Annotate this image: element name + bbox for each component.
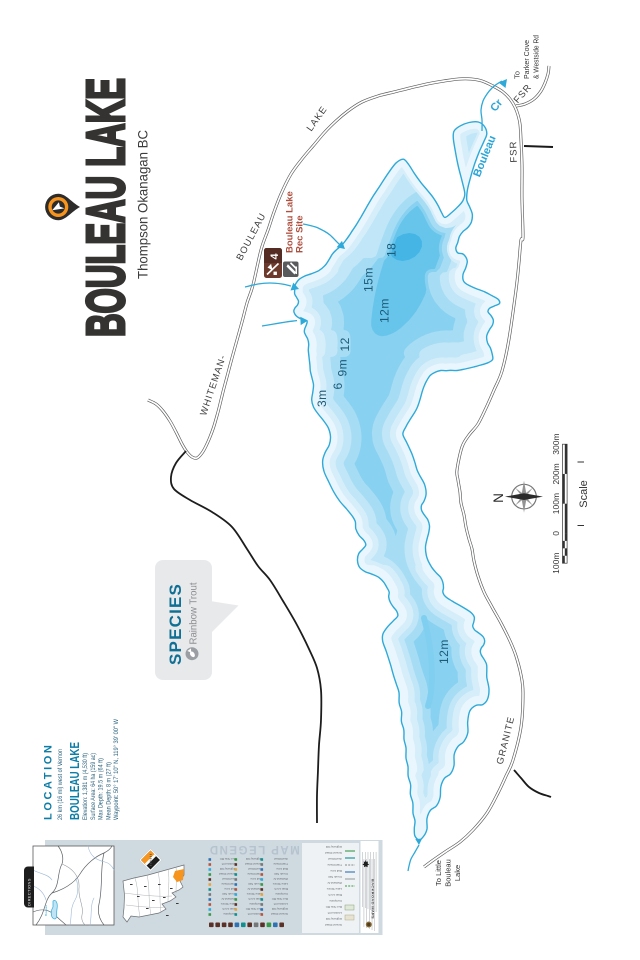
- svg-text:Waypoint: 50° 17' 10" N, 119°: Waypoint: 50° 17' 10" N, 119° 39' 00" W: [112, 718, 120, 820]
- svg-text:Highway Rd: Highway Rd: [271, 907, 288, 911]
- svg-text:DIRECTIONS: DIRECTIONS: [27, 878, 32, 906]
- svg-text:MAP LEGEND: MAP LEGEND: [208, 843, 299, 855]
- svg-text:Creek Stm: Creek Stm: [247, 882, 262, 886]
- svg-text:Wetland Ar: Wetland Ar: [221, 897, 236, 901]
- svg-text:300m: 300m: [551, 433, 561, 454]
- svg-text:FSR: FSR: [508, 140, 520, 162]
- svg-text:Rec Site BC: Rec Site BC: [245, 907, 262, 911]
- svg-text:Creek Stm: Creek Stm: [327, 875, 342, 879]
- svg-text:Creek Stm: Creek Stm: [273, 872, 288, 876]
- svg-text:4wd Road: 4wd Road: [222, 877, 236, 881]
- svg-text:Rail Line: Rail Line: [330, 869, 342, 873]
- svg-text:Highway Rd: Highway Rd: [219, 867, 236, 871]
- svg-text:Wetland Ar: Wetland Ar: [273, 877, 288, 881]
- svg-text:BOULEAU LAKE: BOULEAU LAKE: [67, 742, 82, 820]
- svg-text:Trail Route: Trail Route: [273, 862, 288, 866]
- svg-text:4wd Road: 4wd Road: [274, 857, 288, 861]
- svg-text:Gravel Road: Gravel Road: [219, 872, 236, 876]
- svg-text:15m: 15m: [362, 267, 376, 292]
- svg-text:3m: 3m: [315, 389, 329, 407]
- svg-text:Highway Rd: Highway Rd: [245, 857, 262, 861]
- svg-text:Creek Stm: Creek Stm: [221, 892, 236, 896]
- svg-text:12: 12: [338, 337, 352, 351]
- svg-text:4: 4: [269, 253, 281, 260]
- svg-text:N: N: [491, 493, 506, 503]
- svg-text:Lake: Lake: [453, 865, 462, 881]
- svg-text:Thompson Okanagan BC: Thompson Okanagan BC: [136, 130, 151, 279]
- svg-text:0: 0: [551, 531, 561, 536]
- svg-text:To Little: To Little: [434, 860, 443, 886]
- svg-text:Lookout Pt: Lookout Pt: [273, 902, 288, 906]
- svg-text:Mean Depth: 8 m (27 ft): Mean Depth: 8 m (27 ft): [105, 762, 112, 820]
- svg-text:Parker Cove: Parker Cove: [522, 40, 531, 79]
- svg-text:4wd Road: 4wd Road: [328, 857, 342, 861]
- svg-text:9m: 9m: [336, 359, 350, 377]
- svg-text:Boat Lnch: Boat Lnch: [274, 887, 288, 891]
- svg-text:Lake Shore: Lake Shore: [246, 892, 262, 896]
- svg-text:Wetland Ar: Wetland Ar: [247, 887, 262, 891]
- svg-text:Lookout Pt: Lookout Pt: [221, 862, 236, 866]
- svg-text:6: 6: [331, 382, 345, 389]
- svg-text:Boat Lnch: Boat Lnch: [222, 907, 236, 911]
- svg-text:Highway Rd: Highway Rd: [325, 917, 342, 921]
- svg-text:Gravel Road: Gravel Road: [325, 923, 342, 927]
- svg-text:Trail Route: Trail Route: [247, 872, 262, 876]
- svg-text:Lake Shore: Lake Shore: [220, 902, 236, 906]
- svg-text:Bouleau: Bouleau: [44, 905, 48, 916]
- svg-text:Rec Site BC: Rec Site BC: [325, 905, 342, 909]
- svg-text:Rail Line: Rail Line: [250, 877, 262, 881]
- svg-text:Campsite: Campsite: [329, 899, 342, 903]
- svg-text:Surface Area: 64 ha (159 ac): Surface Area: 64 ha (159 ac): [90, 753, 97, 820]
- svg-text:Campsite: Campsite: [275, 892, 288, 896]
- svg-text:Rainbow Trout: Rainbow Trout: [188, 582, 200, 644]
- svg-text:Bouleau: Bouleau: [444, 859, 453, 887]
- svg-text:Trail Route: Trail Route: [327, 863, 342, 867]
- svg-text:Boat Lnch: Boat Lnch: [328, 893, 342, 897]
- svg-text:Campsite: Campsite: [249, 902, 262, 906]
- svg-text:200m: 200m: [551, 463, 561, 484]
- svg-text:Lake Shore: Lake Shore: [272, 882, 288, 886]
- svg-text:Scale: Scale: [578, 480, 590, 508]
- svg-text:Gravel Road: Gravel Road: [271, 912, 288, 916]
- svg-text:100m: 100m: [551, 553, 561, 574]
- svg-text:& Westside Rd: & Westside Rd: [532, 35, 541, 79]
- svg-text:100m: 100m: [551, 493, 561, 514]
- svg-text:12m: 12m: [378, 298, 392, 323]
- svg-text:Rec Site: Rec Site: [295, 216, 306, 254]
- svg-text:Highway Rd: Highway Rd: [325, 845, 342, 849]
- svg-text:Max Depth: 19.5 m (64 ft): Max Depth: 19.5 m (64 ft): [98, 758, 105, 820]
- svg-text:Gravel Road: Gravel Road: [245, 862, 262, 866]
- svg-text:Rec Site BC: Rec Site BC: [271, 897, 288, 901]
- svg-text:Lake Shore: Lake Shore: [326, 887, 342, 891]
- svg-text:Gravel Road: Gravel Road: [325, 851, 342, 855]
- svg-text:Rail Line: Rail Line: [276, 867, 288, 871]
- svg-text:Wetland Ar: Wetland Ar: [327, 881, 342, 885]
- svg-text:Boat Lnch: Boat Lnch: [248, 897, 262, 901]
- svg-text:Rail Line: Rail Line: [224, 887, 236, 891]
- svg-text:LOCATION: LOCATION: [43, 743, 55, 820]
- svg-text:Elevation: 1,381 m (4,530 ft): Elevation: 1,381 m (4,530 ft): [82, 753, 89, 820]
- svg-text:Campsite: Campsite: [223, 912, 236, 916]
- svg-text:4wd Road: 4wd Road: [248, 867, 262, 871]
- svg-text:Trail Route: Trail Route: [221, 882, 236, 886]
- svg-text:BOULEAU LAKE: BOULEAU LAKE: [76, 78, 136, 337]
- svg-text:SPECIES: SPECIES: [166, 583, 185, 665]
- svg-text:Lookout Pt: Lookout Pt: [327, 911, 342, 915]
- svg-text:26 km (16 mi) west of Vernon: 26 km (16 mi) west of Vernon: [57, 749, 64, 820]
- svg-text:18: 18: [385, 243, 399, 257]
- svg-text:12m: 12m: [437, 639, 451, 664]
- svg-text:Rec Site BC: Rec Site BC: [219, 857, 236, 861]
- svg-text:Lookout Pt: Lookout Pt: [247, 912, 262, 916]
- svg-text:To: To: [513, 71, 522, 79]
